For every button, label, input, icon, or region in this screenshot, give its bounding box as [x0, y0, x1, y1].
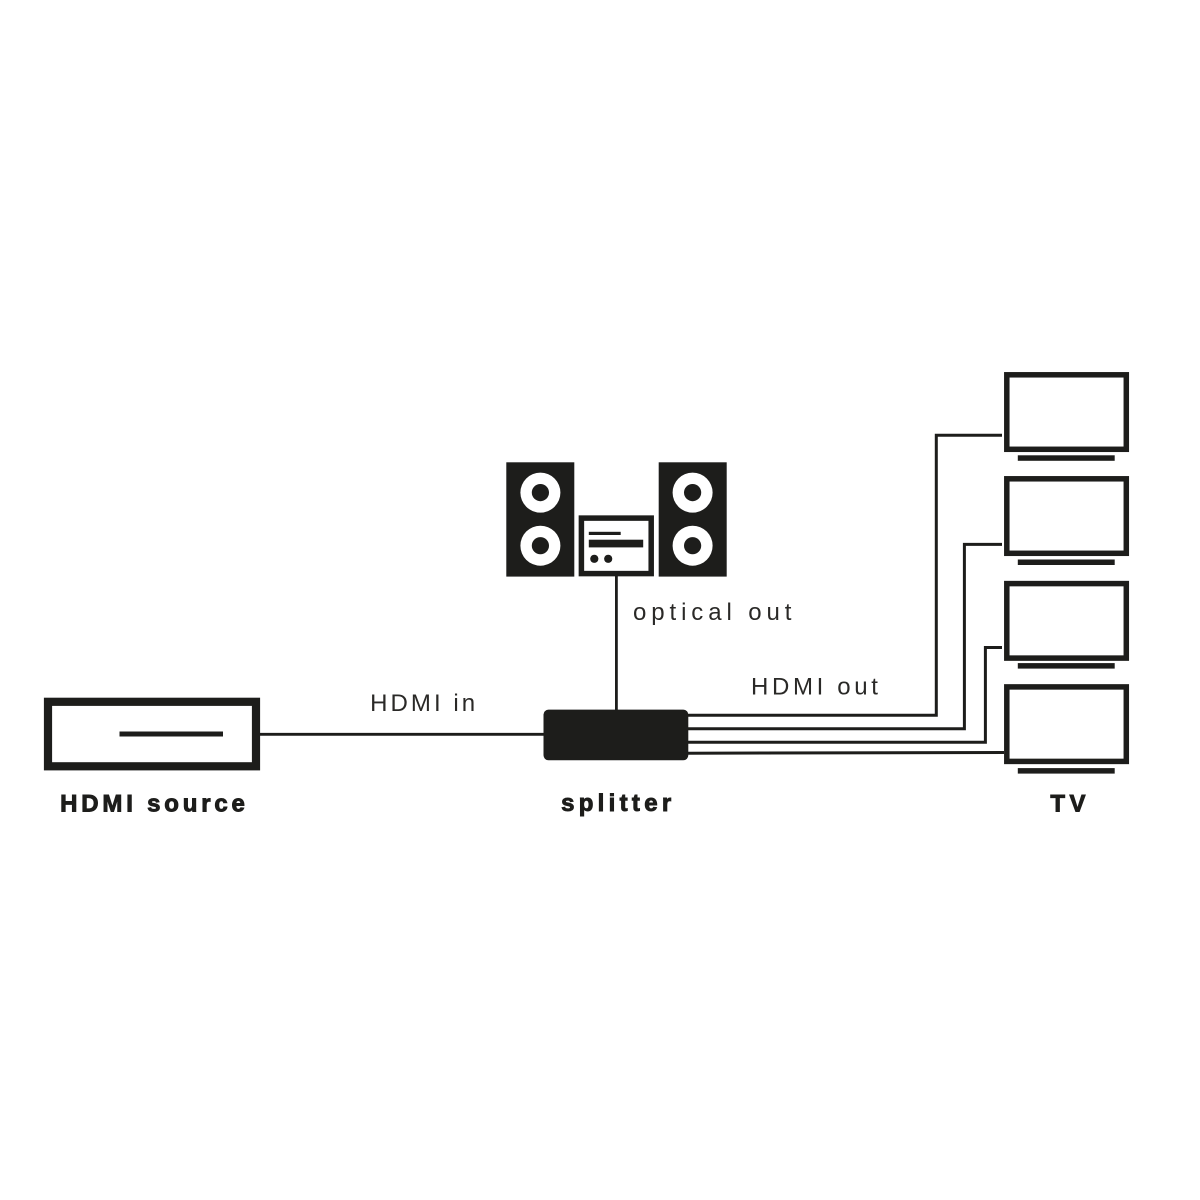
svg-text:TV: TV: [1050, 791, 1090, 818]
svg-text:optical out: optical out: [633, 599, 796, 626]
svg-text:HDMI in: HDMI in: [370, 690, 478, 717]
svg-text:splitter: splitter: [561, 790, 675, 817]
svg-text:HDMI out: HDMI out: [751, 673, 882, 700]
svg-text:HDMI source: HDMI source: [60, 791, 249, 818]
